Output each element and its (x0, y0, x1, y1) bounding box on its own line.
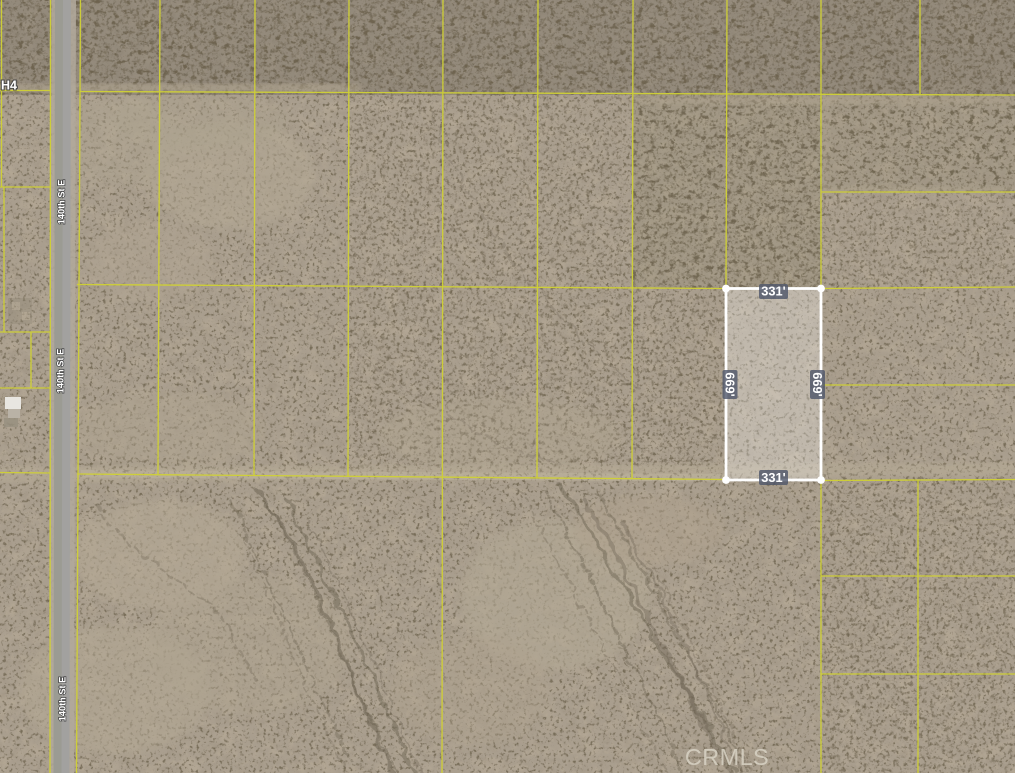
svg-text:331': 331' (761, 470, 785, 485)
svg-text:140th St E: 140th St E (56, 349, 66, 393)
svg-text:140th St E: 140th St E (58, 677, 68, 721)
svg-text:331': 331' (761, 284, 785, 299)
svg-text:669': 669' (810, 372, 825, 396)
svg-text:669': 669' (723, 372, 738, 396)
svg-text:CRMLS: CRMLS (685, 744, 769, 770)
svg-text:H4: H4 (1, 79, 17, 93)
svg-text:140th St E: 140th St E (57, 180, 67, 224)
